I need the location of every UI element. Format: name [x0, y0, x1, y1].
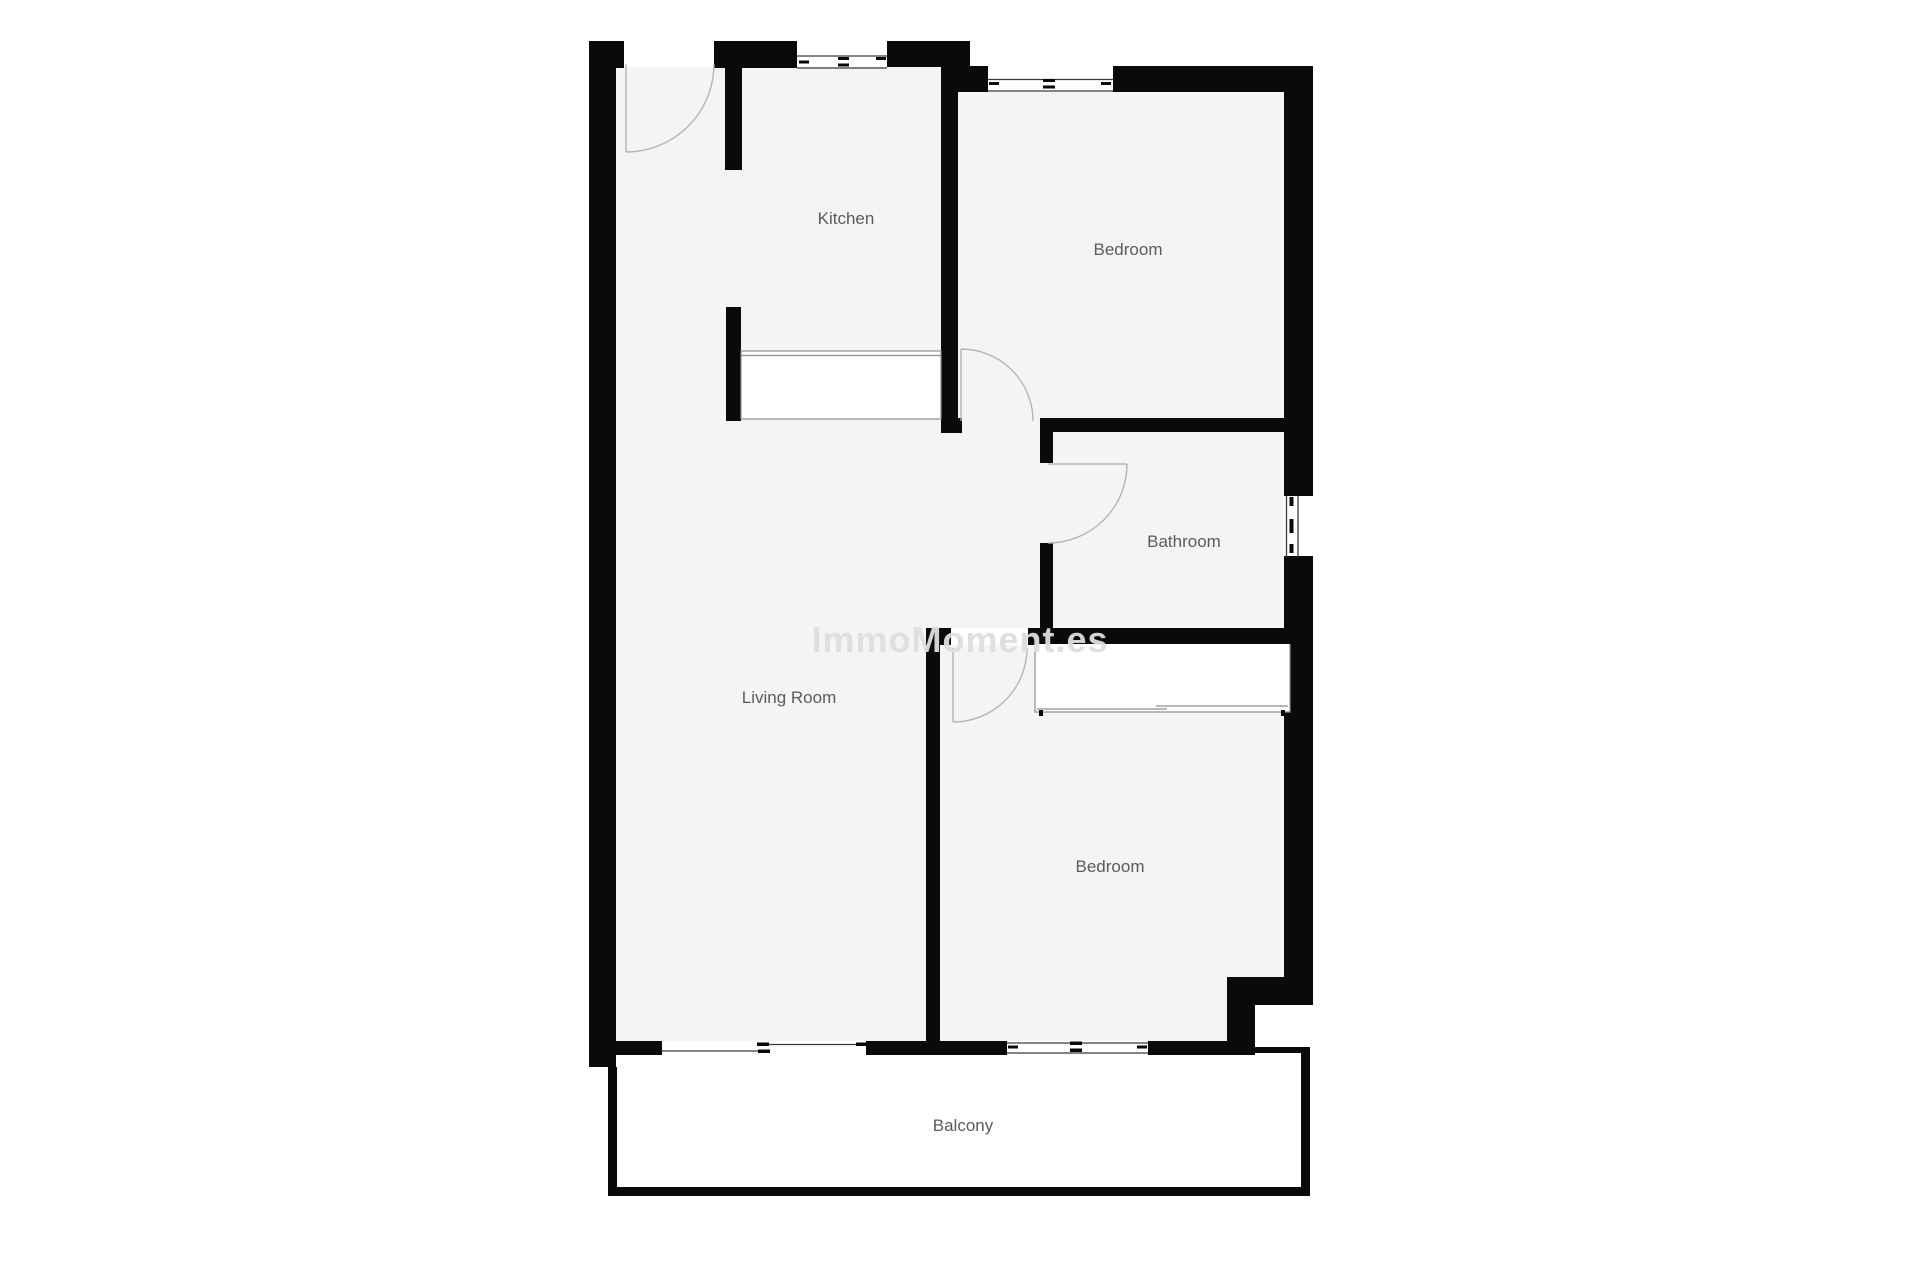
floor-bathroom — [1053, 432, 1284, 628]
room-label-bedroom-2: Bedroom — [1076, 857, 1145, 876]
wall-bathroom-left-b — [1040, 543, 1053, 628]
wall-right-lower — [1284, 556, 1313, 978]
wall-kitchen-end-cap — [941, 418, 962, 433]
room-label-bathroom: Bathroom — [1147, 532, 1221, 551]
room-label-living-room: Living Room — [742, 688, 837, 707]
window-kitchen — [797, 56, 887, 68]
wall-balcony-bottom — [608, 1187, 1310, 1196]
wall-balcony-top-right — [1255, 1047, 1310, 1053]
room-label-bedroom-1: Bedroom — [1094, 240, 1163, 259]
window-bedroom-1 — [988, 79, 1113, 91]
wall-bottom-2 — [866, 1041, 1007, 1055]
room-label-balcony: Balcony — [933, 1116, 994, 1135]
window-bedroom-2 — [1007, 1042, 1148, 1054]
wall-bottom-1 — [613, 1041, 662, 1055]
wall-bathroom-top — [1040, 418, 1284, 432]
wall-bottom-3 — [1148, 1041, 1255, 1055]
floor-plan: Kitchen Bedroom Bathroom Living Room Bed… — [0, 0, 1920, 1280]
wall-bathroom-left-a — [1040, 432, 1053, 463]
wall-top-1 — [714, 41, 797, 68]
wall-balcony-left — [608, 1067, 617, 1196]
wall-right-upper — [1284, 66, 1313, 496]
wall-kitchen-stub-lower — [726, 307, 741, 421]
wall-kitchen-bedroom1 — [941, 67, 958, 418]
balcony-sliding-door — [662, 1043, 868, 1054]
floor-kitchen-living — [616, 67, 941, 1041]
room-label-kitchen: Kitchen — [818, 209, 875, 228]
wall-right-step-h — [1227, 977, 1313, 1005]
window-bathroom — [1287, 496, 1299, 557]
floor-hallway — [941, 418, 1053, 628]
wall-living-bedroom2 — [926, 628, 940, 1041]
kitchen-pass-through-counter — [741, 351, 941, 419]
wall-top-corner — [589, 41, 624, 68]
wall-kitchen-stub-upper — [725, 68, 742, 170]
wall-balcony-right — [1301, 1048, 1310, 1196]
wall-left-outer — [589, 41, 616, 1067]
wall-bedroom1-top — [1113, 66, 1313, 92]
wall-right-step-v — [1227, 1005, 1255, 1047]
watermark: ImmoMoment.es — [811, 619, 1108, 660]
wall-top-2 — [887, 41, 970, 67]
